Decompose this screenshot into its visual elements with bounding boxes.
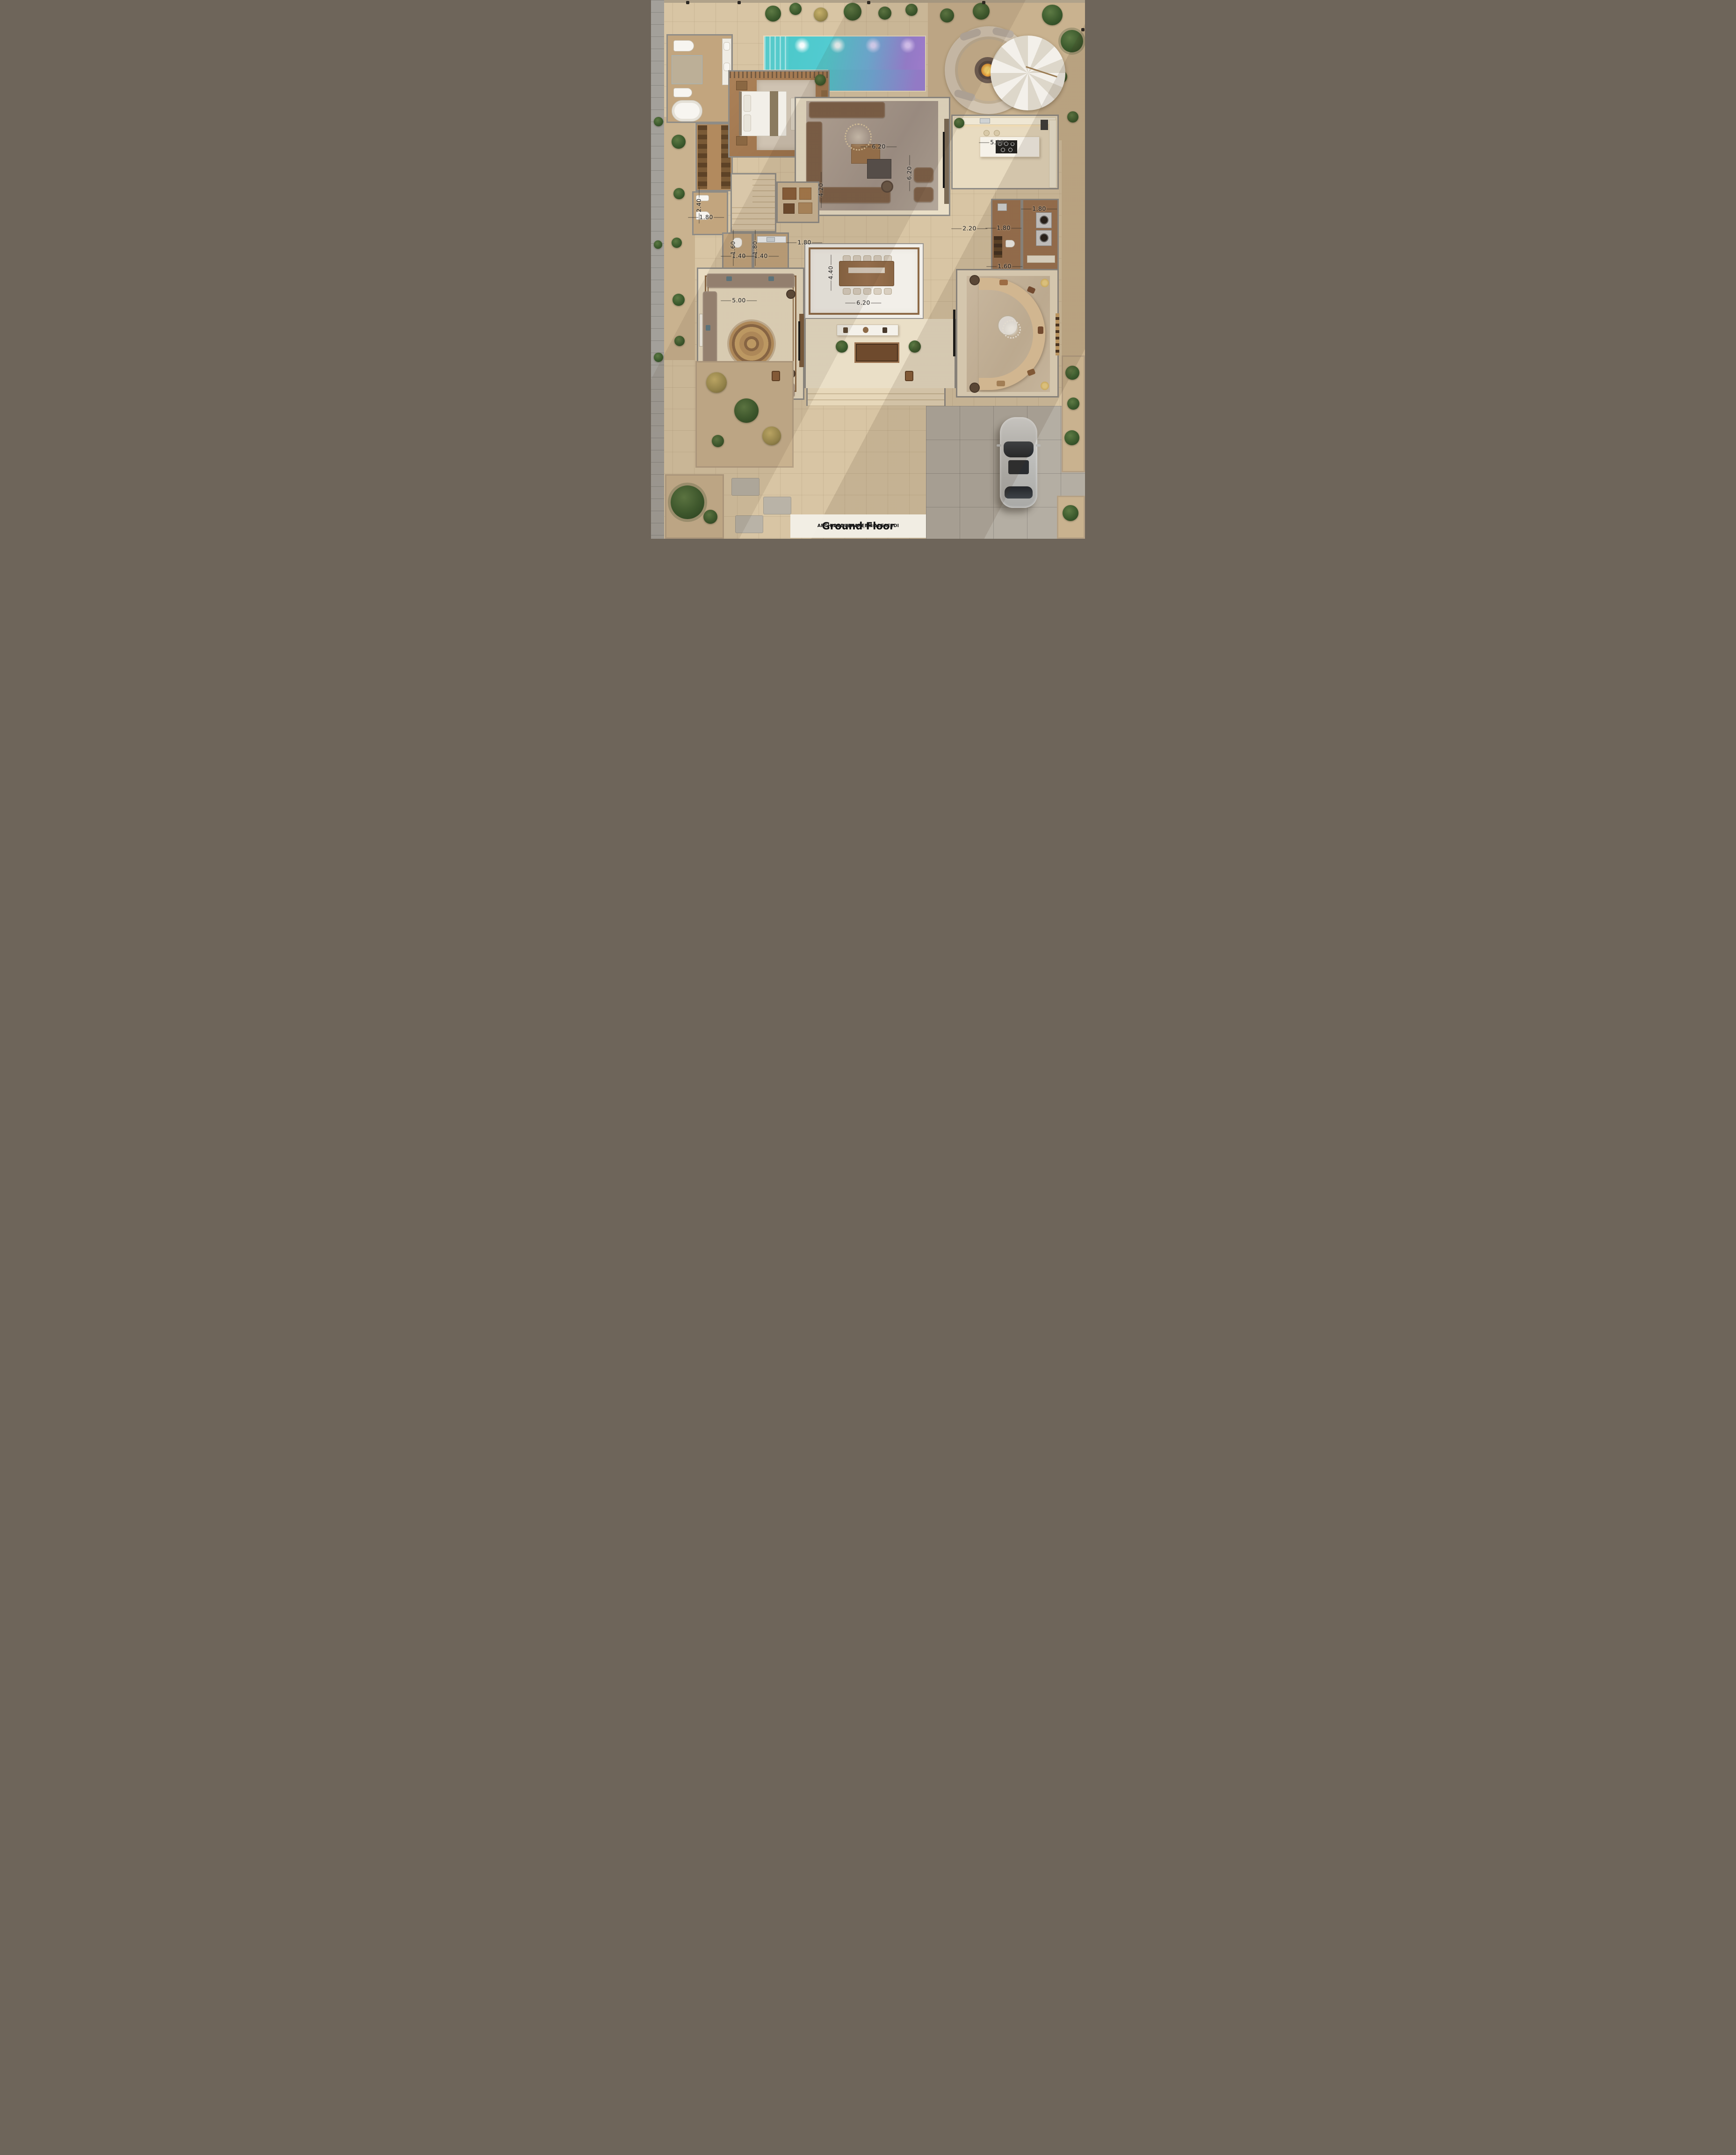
luggage-box: [799, 188, 811, 200]
side-table: [786, 289, 796, 299]
stepping-stone: [763, 497, 791, 514]
wall-art: [699, 314, 703, 347]
dimension-label: 4.20: [817, 183, 825, 196]
kitchen-counter-right: [1049, 120, 1056, 188]
dining-chair: [874, 288, 882, 295]
bed-throw: [770, 91, 778, 136]
sofa-bottom: [819, 187, 890, 203]
dimension-label: 1.80: [797, 239, 811, 246]
hedge-icon: [905, 4, 918, 16]
dimension-label: 1.80: [997, 224, 1010, 231]
dryer-door-icon: [1040, 233, 1049, 242]
laundry-counter: [1027, 255, 1055, 263]
table-centerpiece: [848, 268, 885, 273]
entrance-steps: [806, 388, 946, 406]
carpet-medallion: [729, 321, 774, 366]
nightstand: [736, 136, 747, 145]
car-windshield: [1004, 441, 1034, 457]
palm-tree-icon: [973, 3, 990, 20]
sink: [998, 203, 1007, 211]
shrub-icon: [654, 117, 663, 126]
dining-chair: [863, 288, 871, 295]
shrub-icon: [954, 118, 964, 128]
stepping-stone: [735, 515, 763, 533]
storage-room: [776, 181, 819, 223]
walk-in-closet: [695, 123, 733, 191]
patio-umbrella: [991, 36, 1065, 110]
agave-plant-icon: [734, 398, 759, 423]
shrub-icon: [1067, 398, 1079, 410]
palm-tree-icon: [1061, 30, 1083, 52]
accent-pillow: [706, 325, 710, 331]
car-sunroof: [1008, 460, 1029, 474]
sink: [767, 237, 775, 242]
pool-light: [794, 37, 810, 53]
bathtub: [672, 100, 702, 122]
wall-light-icon: [1081, 28, 1085, 31]
entry-rug: [854, 342, 899, 363]
luggage-box: [783, 203, 795, 214]
sofa-pillow: [999, 280, 1008, 285]
chandelier-icon: [1002, 320, 1021, 339]
pillow: [744, 95, 751, 112]
dimension-label: 6.20: [872, 143, 885, 150]
shrub-icon: [712, 435, 724, 447]
sink: [723, 42, 730, 51]
bar-stool: [994, 130, 1000, 136]
entrance-hall: [804, 319, 956, 388]
bedroom-plant-icon: [815, 74, 826, 86]
entry-plant-icon: [909, 340, 921, 353]
pillow: [744, 115, 751, 131]
agave-plant-icon: [706, 372, 727, 393]
burner-icon: [1011, 142, 1014, 146]
car-mirror: [997, 444, 1001, 447]
agave-plant-icon: [762, 427, 781, 445]
luggage-box: [782, 188, 796, 200]
bar-stool: [984, 130, 990, 136]
kitchen-sink: [980, 118, 990, 123]
hedge-icon: [814, 7, 828, 22]
dining-chair: [853, 288, 861, 295]
shrub-icon: [1063, 505, 1078, 521]
tv-wall: [944, 119, 949, 204]
palm-tree-icon: [1042, 5, 1063, 25]
dimension-label: 1.80: [1032, 205, 1046, 212]
pool-light: [830, 37, 846, 53]
palm-tree-icon: [671, 485, 704, 519]
toilet: [1005, 240, 1015, 247]
bidet: [673, 88, 692, 97]
hedge-icon: [878, 7, 891, 20]
dining-room: [804, 243, 924, 319]
dining-table: [839, 261, 894, 286]
accent-pillow: [768, 276, 774, 281]
porch-column: [905, 371, 913, 381]
round-pouf: [881, 181, 893, 193]
kitchen: [951, 115, 1059, 189]
floor-plan-canvas: 6.20 6.20 4.20 5.00 2.40 1.80 1.60 1.40 …: [651, 0, 1085, 539]
dimension-label: 2.20: [962, 225, 976, 232]
pool-light: [865, 37, 881, 53]
dining-chair: [843, 288, 851, 295]
shrub-icon: [672, 135, 686, 149]
shrub-icon: [672, 238, 682, 248]
dimension-label: 6.20: [856, 299, 870, 306]
sofa-pillow: [1038, 326, 1043, 334]
accent-pillow: [726, 276, 732, 281]
shrub-icon: [1065, 366, 1079, 380]
porch-column: [772, 371, 780, 381]
floor-lamp-icon: [1041, 279, 1049, 287]
decor-object: [843, 327, 848, 333]
side-table: [969, 383, 980, 393]
burner-icon: [1001, 148, 1005, 152]
dimension-label: 5.00: [732, 297, 745, 304]
stepping-stone: [731, 478, 759, 496]
car-rear-window: [1005, 486, 1033, 499]
toilet: [673, 40, 694, 51]
family-tv-screen: [953, 310, 955, 356]
dimension-label: 4.40: [827, 266, 834, 279]
wardrobe-shelves: [698, 125, 707, 189]
dimension-label: 5.00: [990, 139, 1004, 146]
dimension-label: 1.80: [699, 214, 713, 221]
shrub-icon: [703, 510, 717, 524]
dimension-label: 1.40: [754, 253, 767, 260]
armchair: [914, 167, 933, 182]
nightstand: [736, 81, 747, 90]
decor-object: [882, 327, 887, 333]
hedge-icon: [789, 3, 802, 15]
wall-light-icon: [738, 1, 741, 4]
wall-light-icon: [982, 1, 985, 4]
stair-landing: [732, 174, 752, 202]
shrub-icon: [654, 240, 662, 249]
side-paver-strip: [651, 0, 664, 539]
social-handle: twitter@arch_alsaeedi: [832, 523, 884, 529]
decor-object: [863, 327, 868, 333]
shower: [672, 55, 702, 84]
shrub-icon: [673, 294, 685, 306]
side-table: [969, 275, 980, 285]
master-bathroom: [666, 34, 733, 123]
shrub-icon: [674, 336, 685, 346]
shrub-icon: [654, 353, 663, 362]
car-mirror: [1036, 444, 1041, 447]
hedge-icon: [940, 8, 954, 22]
car: [1000, 417, 1037, 508]
armchair: [914, 187, 933, 202]
dimension-label: 1.60: [998, 263, 1011, 270]
majlis-sofa-top: [707, 274, 795, 288]
palm-tree-icon: [844, 3, 861, 21]
dining-chair: [884, 288, 892, 295]
dimension-label: 6.20: [906, 166, 913, 180]
wall-mirror: [1056, 313, 1059, 355]
entry-plant-icon: [836, 340, 848, 353]
hedge-icon: [765, 6, 781, 22]
shrub-icon: [673, 188, 685, 199]
shrub-icon: [1064, 430, 1079, 445]
pool-light: [900, 37, 916, 53]
wall-light-icon: [867, 1, 870, 4]
bookshelf: [994, 236, 1002, 258]
wall-light-icon: [686, 1, 689, 4]
sofa-top: [809, 102, 885, 118]
pool-steps: [764, 36, 788, 70]
tv-screen: [943, 132, 945, 188]
floor-lamp-icon: [1041, 382, 1049, 390]
washer-door-icon: [1040, 216, 1049, 224]
shrub-icon: [1067, 111, 1078, 123]
dimension-label: 2.40: [695, 198, 702, 212]
staircase: [731, 173, 776, 232]
pergola-slats: [730, 72, 828, 78]
sofa-pillow: [997, 381, 1005, 386]
title-block: Ground Floor ARCH-ABDULKAREEM ALSAEEDI t…: [790, 514, 926, 538]
tv-screen: [798, 321, 800, 361]
luggage-box: [798, 202, 812, 214]
oven-stack: [1041, 120, 1048, 130]
swimming-pool-deep-end: [827, 70, 926, 92]
coffee-table-dark: [867, 159, 891, 179]
family-room: [956, 269, 1059, 398]
burner-icon: [1008, 148, 1013, 152]
